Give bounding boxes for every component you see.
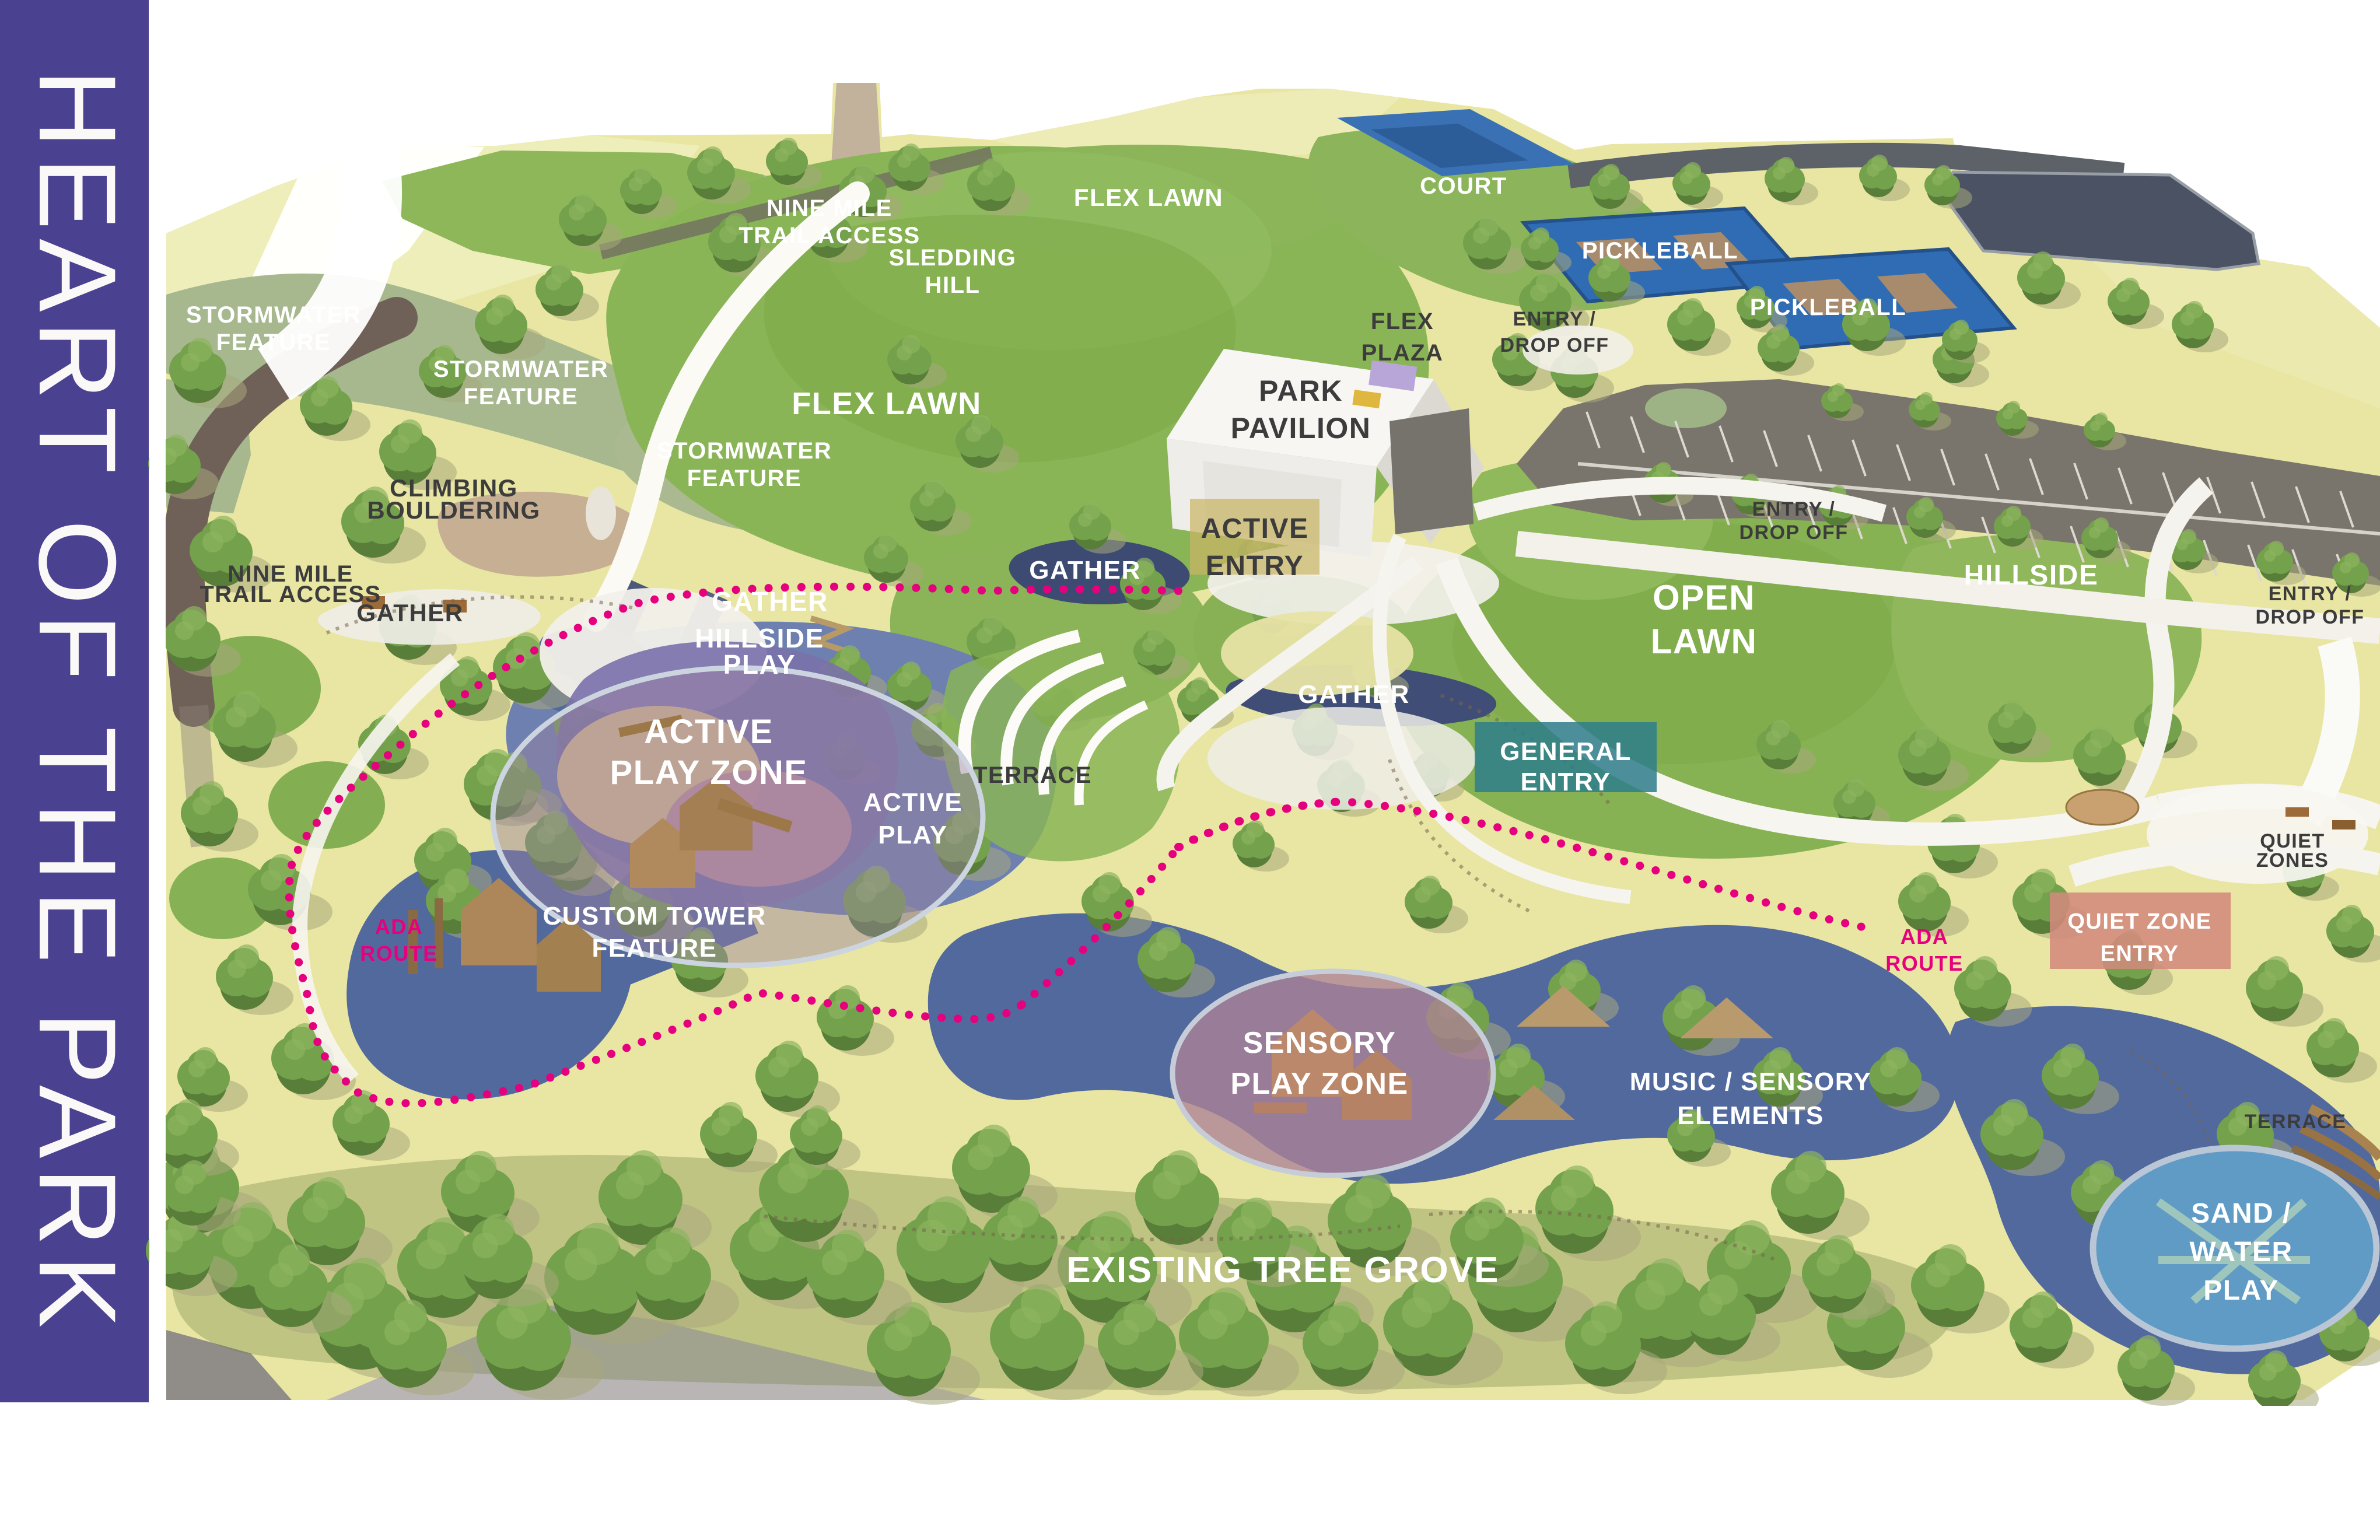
svg-text:PICKLEBALL: PICKLEBALL [1582, 238, 1738, 264]
svg-text:GATHER: GATHER [712, 586, 828, 617]
svg-text:EXISTING TREE GROVE: EXISTING TREE GROVE [1066, 1250, 1499, 1290]
svg-text:TERRACE: TERRACE [2245, 1111, 2347, 1133]
svg-text:HILLSIDE: HILLSIDE [1964, 560, 2099, 591]
svg-text:GATHER: GATHER [356, 599, 463, 626]
svg-text:FLEX LAWN: FLEX LAWN [792, 386, 981, 421]
svg-text:GATHER: GATHER [1029, 556, 1141, 584]
svg-text:QUIETZONES: QUIETZONES [2256, 830, 2329, 871]
svg-text:PICKLEBALL: PICKLEBALL [1750, 295, 1906, 320]
svg-text:GATHER: GATHER [1298, 680, 1410, 709]
svg-text:TERRACE: TERRACE [973, 762, 1092, 788]
svg-text:COURT: COURT [1420, 173, 1507, 199]
svg-text:HEART OF THE PARK: HEART OF THE PARK [16, 69, 139, 1337]
svg-text:CLIMBINGBOULDERING: CLIMBINGBOULDERING [367, 474, 540, 524]
svg-text:SAND /WATERPLAY: SAND /WATERPLAY [2189, 1198, 2292, 1306]
svg-text:FLEX LAWN: FLEX LAWN [1074, 184, 1223, 211]
